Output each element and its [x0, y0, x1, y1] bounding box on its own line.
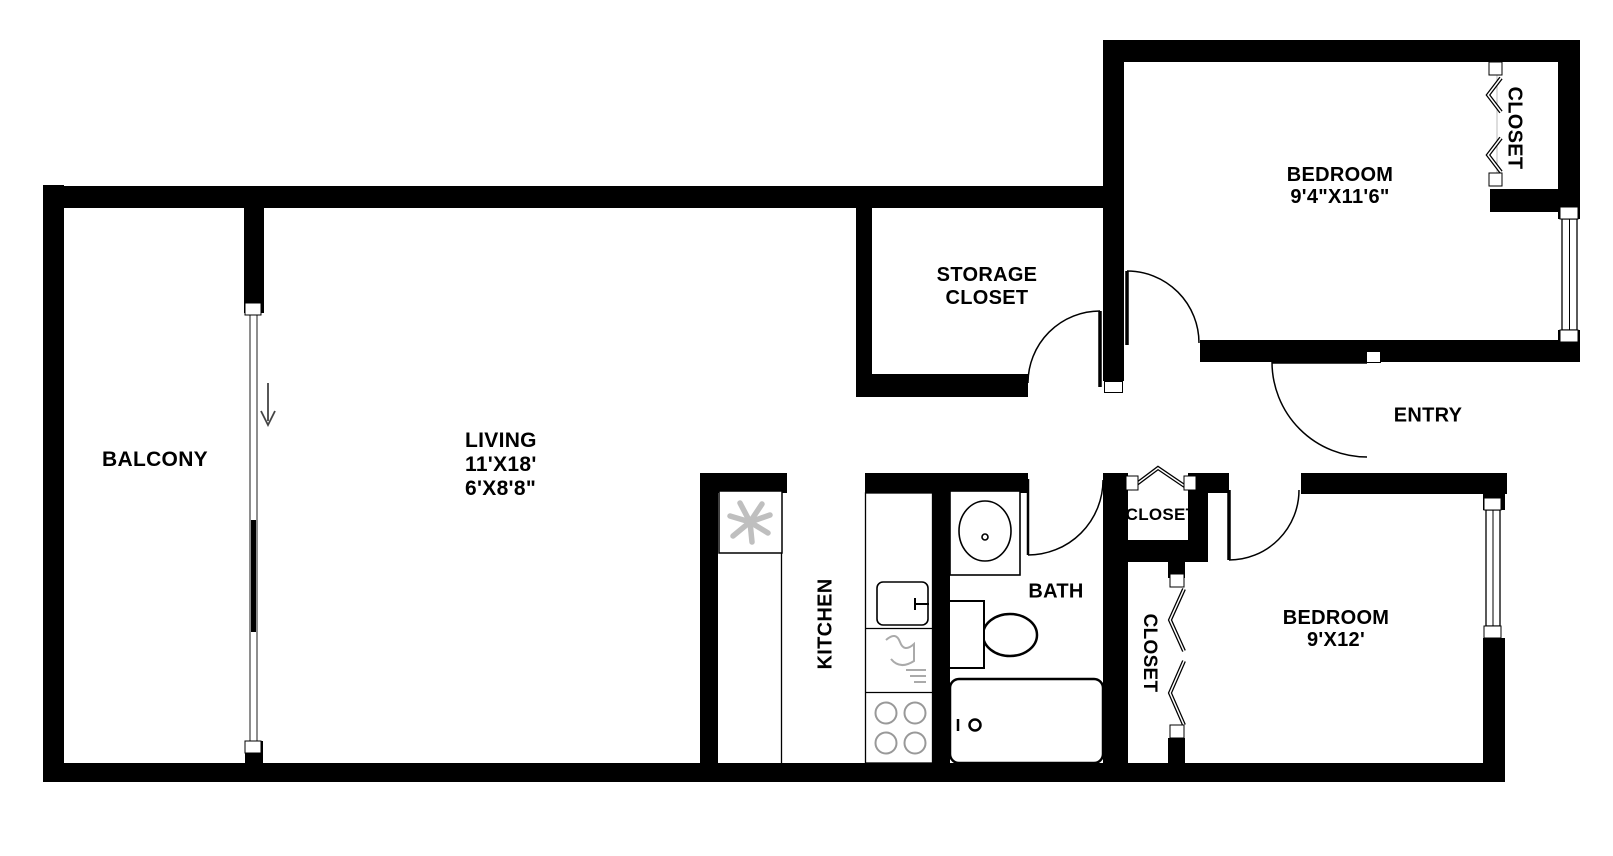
balcony-label: BALCONY [102, 448, 208, 472]
kitchen-counter-right [866, 493, 934, 763]
down-arrow-icon [261, 383, 275, 425]
storage-closet-label: STORAGE CLOSET [937, 264, 1038, 310]
entry-label: ENTRY [1394, 405, 1463, 428]
bathtub-icon [950, 679, 1103, 763]
bedroom1-closet-label: CLOSET [1503, 87, 1526, 170]
bath-label: BATH [1028, 581, 1083, 604]
toilet-icon [949, 601, 1037, 668]
hall-closet-bifold-door [1126, 468, 1196, 490]
kitchen-label: KITCHEN [815, 579, 838, 670]
living-name: LIVING [465, 429, 537, 453]
kitchen-counter-left [719, 491, 782, 763]
living-dims-1: 11'X18' [465, 453, 537, 477]
bedroom2-window [1484, 498, 1501, 638]
bedroom2-closet-label: CLOSET [1138, 614, 1160, 693]
living-dims-2: 6'X8'8" [465, 477, 537, 501]
bath-door-swing [1028, 479, 1103, 555]
bedroom2-closet-bifold-door [1170, 574, 1184, 738]
storage-closet-door-swing [1028, 311, 1100, 387]
bedroom2-door-swing [1229, 490, 1299, 560]
entry-door-swing [1272, 362, 1367, 457]
bedroom2-label: BEDROOM 9'X12' [1283, 607, 1390, 651]
floor-plan: BALCONY LIVING 11'X18' 6'X8'8" STORAGE C… [0, 0, 1613, 856]
hall-closet-label: CLOSET [1126, 505, 1197, 525]
kitchen-sink-icon [877, 582, 929, 625]
bedroom1-label: BEDROOM 9'4"X11'6" [1287, 164, 1394, 208]
bedroom1-closet-bifold-door [1488, 62, 1502, 186]
vanity-sink-icon [950, 491, 1020, 575]
living-label: LIVING 11'X18' 6'X8'8" [465, 429, 537, 501]
sliding-glass-door [245, 303, 261, 753]
bedroom1-window [1560, 207, 1578, 342]
bedroom1-door-swing [1127, 271, 1199, 345]
